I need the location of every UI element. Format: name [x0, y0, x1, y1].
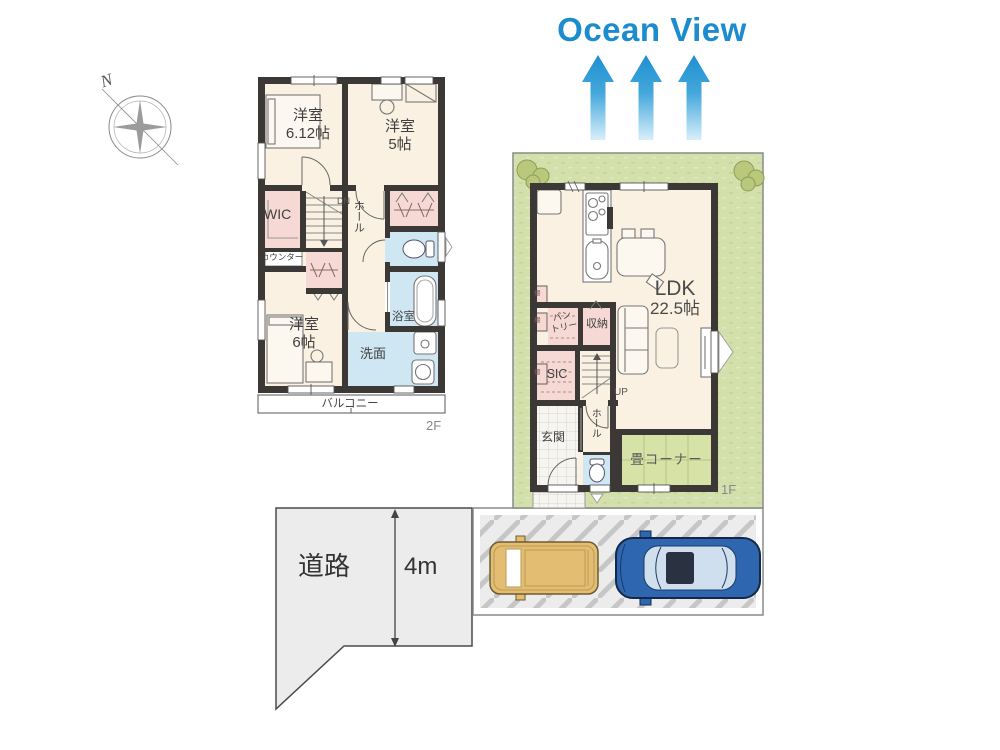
washbasin-icon	[414, 332, 436, 354]
label-entrance: 玄関	[541, 430, 577, 445]
label-bedroom3-2f: 洋室 6帖	[266, 316, 342, 353]
label-shelf-2: 棚	[534, 317, 541, 325]
road-width-label: 4m	[404, 552, 437, 581]
label-stairs-dn: DN	[337, 196, 350, 207]
label-tatami-corner: 畳コーナー	[622, 452, 711, 468]
label-hall-2f: ホール	[351, 200, 364, 270]
road-area	[276, 508, 472, 709]
label-wic: WIC	[264, 206, 291, 223]
label-bathroom: 浴室	[392, 310, 415, 324]
road-label: 道路	[298, 551, 350, 583]
label-washroom: 洗面	[360, 346, 386, 362]
toilet-icon-2f	[403, 240, 434, 258]
refrigerator-icon	[537, 190, 561, 214]
ocean-view-title: Ocean View	[557, 10, 747, 50]
compass-rose-icon	[102, 89, 178, 165]
label-hall-1f: ホール	[588, 408, 600, 456]
label-bedroom1-2f: 洋室 6.12帖	[270, 107, 346, 144]
car-yellow-icon	[490, 536, 598, 600]
ocean-view-arrows-icon	[582, 55, 710, 140]
label-ldk-size: 22.5帖	[640, 299, 710, 320]
floor-plan-canvas: Ocean View N 洋室 6.12帖 洋室 5帖 WIC DN ホール カ…	[0, 0, 1000, 750]
dining-table-icon	[617, 238, 665, 276]
toilet-icon-1f	[590, 459, 605, 482]
label-shelf-3: 棚	[534, 369, 541, 377]
desk-icon	[372, 84, 402, 100]
car-blue-icon	[616, 531, 760, 605]
label-balcony: バルコニー	[290, 397, 410, 411]
floor1-label: 1F	[721, 482, 736, 498]
label-stairs-up: UP	[614, 387, 628, 399]
label-shelf-1: 棚	[534, 290, 541, 298]
label-storage: 収納	[581, 318, 613, 331]
label-bedroom2-2f: 洋室 5帖	[362, 118, 438, 155]
label-ldk-name: LDK	[640, 276, 710, 302]
entrance-porch	[533, 492, 585, 508]
label-sic: SIC	[542, 367, 572, 382]
label-counter: カウンター	[259, 252, 305, 262]
floor2-label: 2F	[426, 418, 441, 434]
sink-icon	[586, 241, 608, 279]
bath-sliding-door	[385, 282, 390, 312]
plan-drawing	[0, 0, 1000, 750]
